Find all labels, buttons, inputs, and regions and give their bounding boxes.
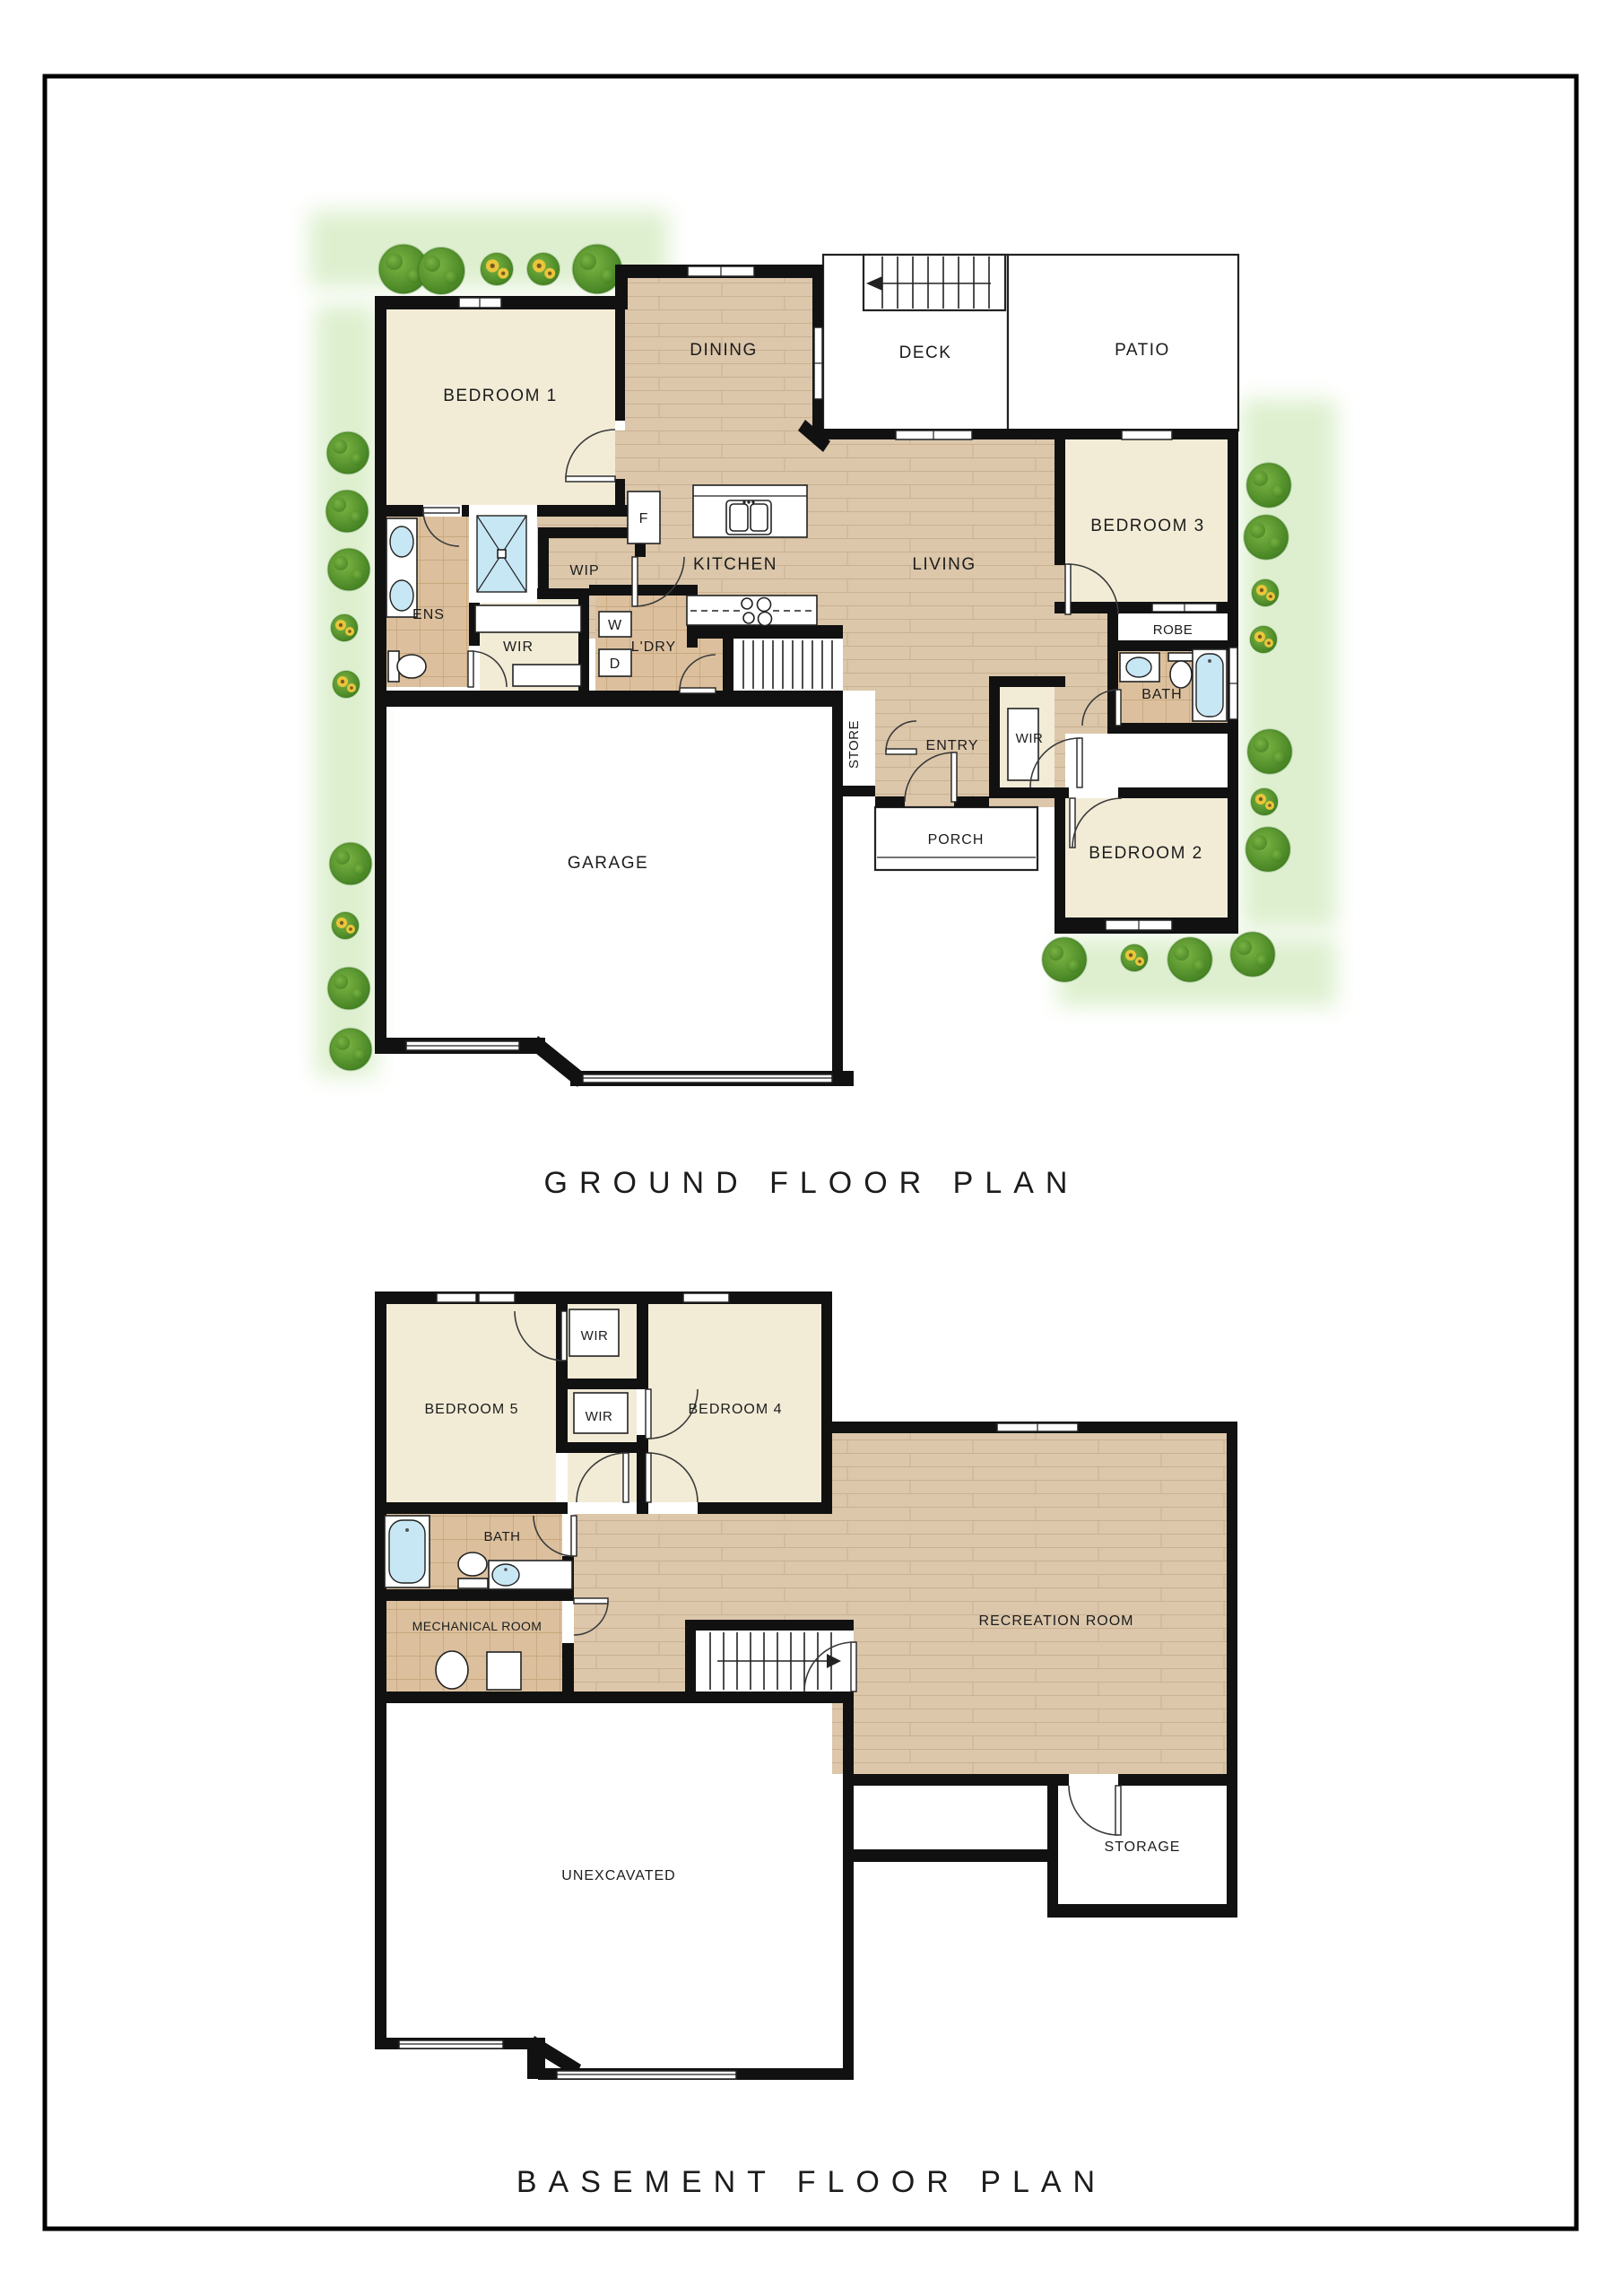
wir-top-label: WIR — [581, 1328, 609, 1344]
toilet-icon — [1170, 661, 1192, 688]
recreation-floor — [832, 1433, 1227, 1774]
bedroom4-window — [683, 1293, 729, 1302]
laundry-label: L'DRY — [631, 639, 676, 655]
bedroom2-label: BEDROOM 2 — [1089, 844, 1203, 863]
bedroom5-window — [479, 1293, 515, 1302]
unexcavated-label: UNEXCAVATED — [561, 1868, 675, 1883]
burner-icon — [742, 598, 752, 609]
bedroom1-floor — [386, 309, 615, 505]
basement-bath-label: BATH — [484, 1529, 521, 1544]
bedroom5-door — [623, 1453, 629, 1502]
toilet-tank — [1168, 653, 1193, 661]
patio-label: PATIO — [1115, 341, 1170, 360]
mechanical-label: MECHANICAL ROOM — [412, 1619, 542, 1633]
floor-plan-canvas: BEDROOM 1 DINING DECK PATIO BEDROOM 3 KI… — [0, 0, 1623, 2296]
storage-door — [1115, 1786, 1121, 1835]
sink-icon — [1126, 657, 1151, 677]
burner-icon — [759, 613, 772, 626]
bedroom4-door — [646, 1453, 651, 1502]
basement-floor-title: BASEMENT FLOOR PLAN — [516, 2165, 1107, 2199]
wip-door — [632, 557, 638, 606]
mechanical-door — [574, 1598, 608, 1604]
porch-label: PORCH — [928, 832, 985, 848]
entry-wir-label: WIR — [1016, 731, 1044, 746]
laundry-door — [680, 688, 716, 693]
bathtub-icon — [1196, 654, 1223, 717]
ground-floor-title: GROUND FLOOR PLAN — [544, 1166, 1080, 1200]
ens-label: ENS — [412, 607, 445, 622]
dryer-label: D — [610, 657, 621, 672]
entry-inner-door — [886, 749, 916, 754]
kitchen-label: KITCHEN — [693, 555, 777, 574]
bath-label: BATH — [1141, 687, 1182, 702]
sink-icon — [390, 580, 413, 611]
ens-door — [423, 508, 459, 513]
bedroom3-label: BEDROOM 3 — [1090, 517, 1205, 535]
deck-label: DECK — [899, 344, 952, 362]
wir-label: WIR — [503, 639, 534, 655]
wir-top-door — [561, 1311, 567, 1361]
garage-label: GARAGE — [568, 854, 648, 873]
bedroom1-door — [566, 476, 615, 482]
entry-label: ENTRY — [926, 738, 979, 753]
deck-stairs — [864, 255, 1005, 310]
toilet-icon — [458, 1552, 487, 1576]
water-heater-icon — [436, 1651, 468, 1689]
store-label: STORE — [846, 720, 862, 769]
bedroom5-label: BEDROOM 5 — [424, 1402, 518, 1417]
bedroom3-door — [1065, 564, 1071, 614]
sink-icon — [390, 526, 413, 557]
washer-label: W — [608, 618, 622, 633]
toilet-base — [458, 1578, 488, 1588]
recreation-label: RECREATION ROOM — [979, 1613, 1134, 1629]
storage-label: STORAGE — [1105, 1839, 1181, 1855]
floor-plan-page: BEDROOM 1 DINING DECK PATIO BEDROOM 3 KI… — [0, 0, 1623, 2296]
wir-mid-door — [646, 1389, 651, 1439]
toilet-icon — [397, 655, 426, 678]
wir-door — [468, 651, 473, 687]
front-door — [951, 752, 957, 802]
sink-icon — [492, 1564, 519, 1586]
mechanical-floor — [386, 1601, 562, 1692]
furnace-icon — [487, 1652, 521, 1690]
living-label: LIVING — [912, 555, 976, 574]
bedroom3-window — [1122, 430, 1172, 439]
burner-icon — [758, 598, 771, 612]
basement-stairs — [696, 1631, 854, 1692]
stairs-door — [851, 1642, 856, 1692]
wir-shelf — [513, 665, 581, 686]
burner-icon — [743, 613, 754, 623]
wir-mid-label: WIR — [586, 1409, 613, 1424]
bedroom4-label: BEDROOM 4 — [688, 1402, 782, 1417]
fridge-label: F — [639, 511, 649, 526]
wir-shelf — [475, 605, 581, 632]
basement-bath-door — [571, 1516, 577, 1556]
robe-label: ROBE — [1153, 622, 1193, 638]
dining-label: DINING — [690, 341, 758, 360]
wip-label: WIP — [569, 563, 599, 578]
bath-door — [1115, 690, 1121, 726]
entry-wir-door — [1077, 738, 1082, 787]
ground-stairs — [733, 639, 843, 691]
bedroom1-label: BEDROOM 1 — [443, 387, 558, 405]
bedroom5-window — [437, 1293, 476, 1302]
